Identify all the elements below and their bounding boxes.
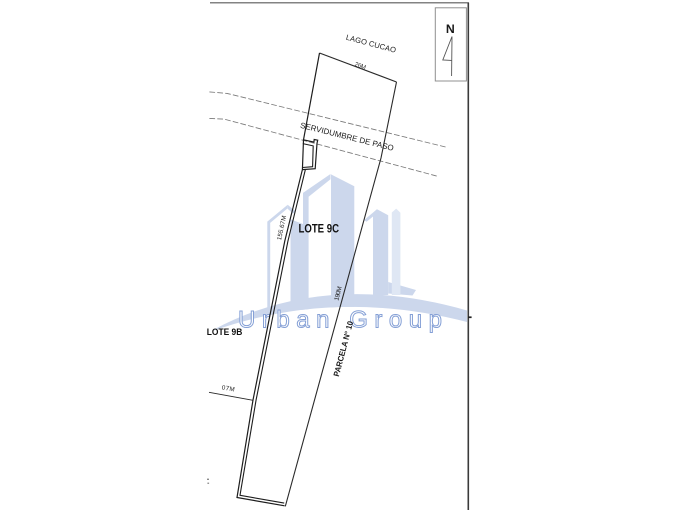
- svg-text:LOTE 9B: LOTE 9B: [207, 326, 243, 337]
- svg-text:LOTE 9C: LOTE 9C: [299, 221, 340, 235]
- svg-text:N: N: [446, 22, 455, 36]
